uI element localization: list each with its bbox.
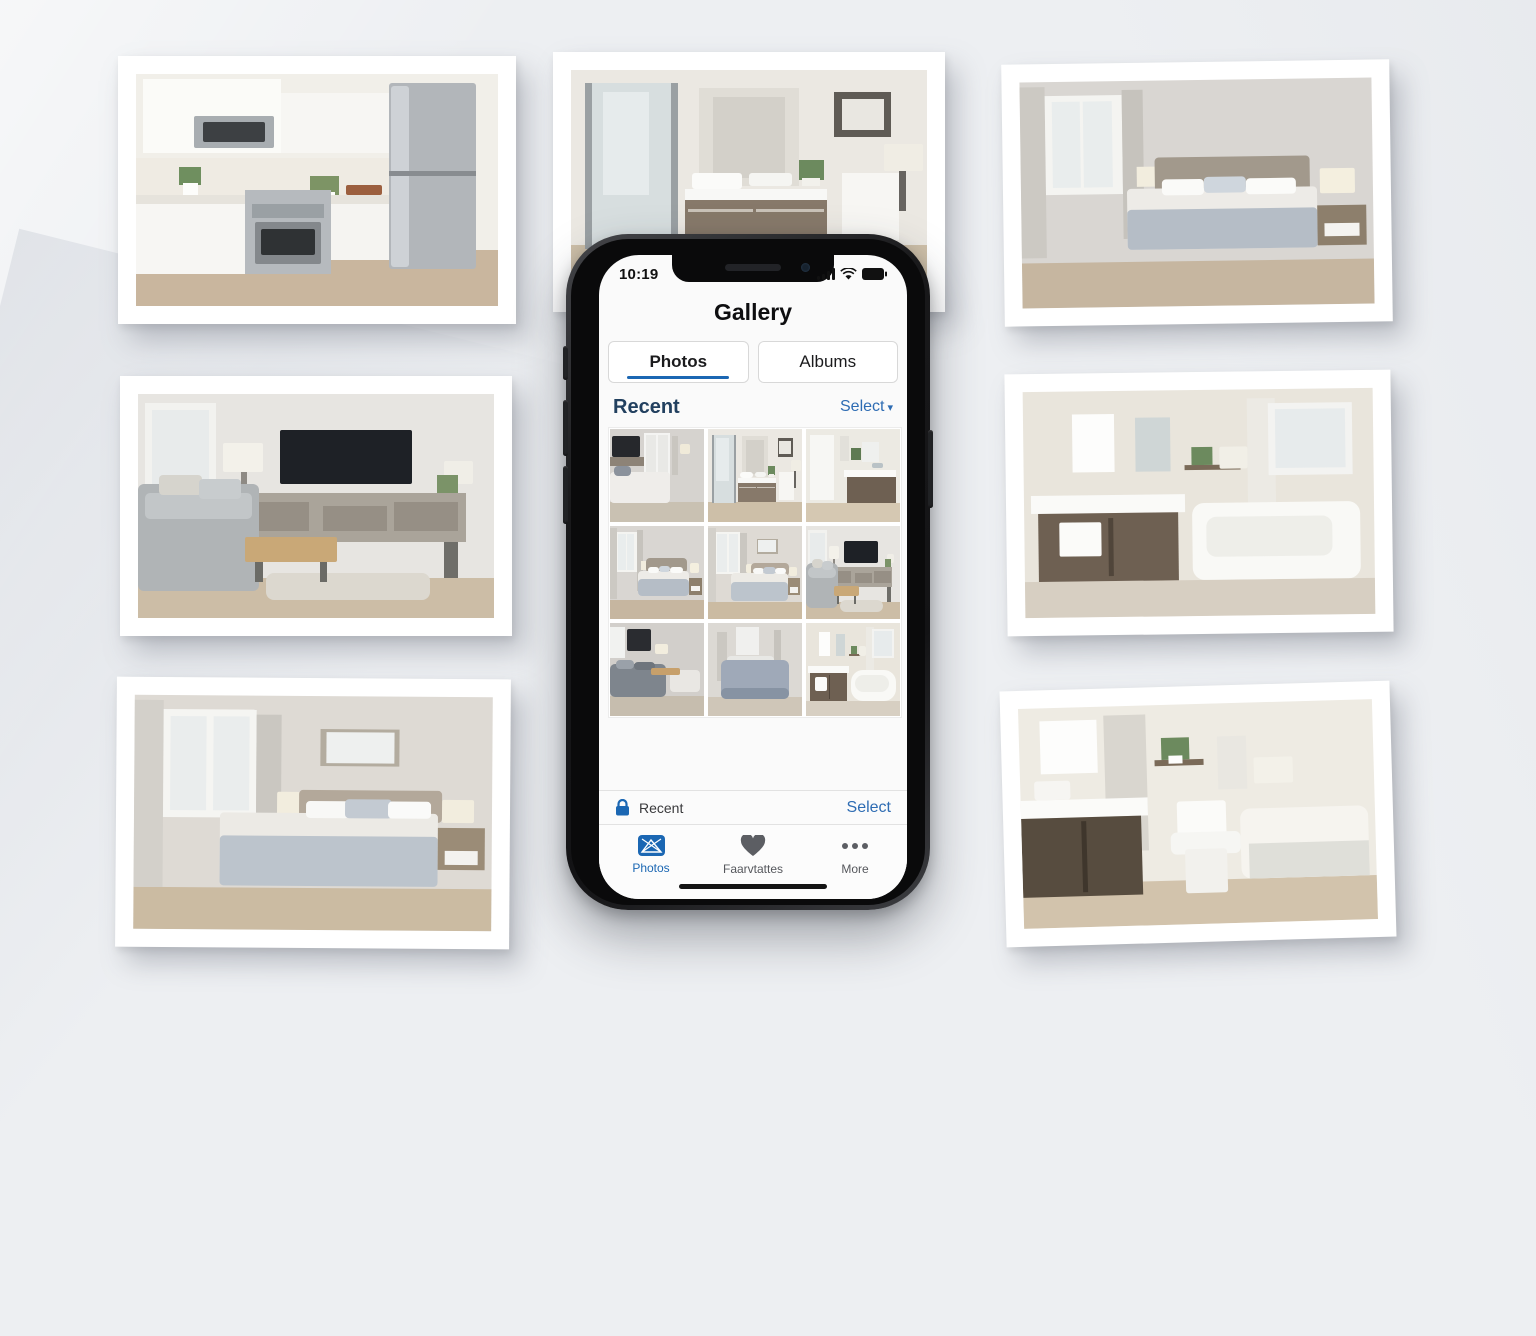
scene-shape (219, 836, 438, 887)
scene-shape (1108, 518, 1114, 577)
grid-photo-1[interactable] (610, 429, 704, 522)
section-title: Recent (613, 396, 680, 419)
scene-shape (223, 443, 262, 472)
scene-shape (690, 563, 699, 573)
scene-shape (1020, 87, 1047, 259)
scene-shape (627, 534, 635, 569)
scene-shape (819, 632, 830, 656)
scene-shape (1083, 102, 1112, 188)
status-time: 10:19 (619, 266, 658, 283)
scene-shape (133, 699, 163, 886)
scene-shape (1206, 515, 1332, 557)
scene-shape (648, 567, 659, 574)
scene-shape (862, 442, 879, 462)
scene-shape (1051, 102, 1080, 188)
scene-shape (731, 582, 788, 602)
grid-photo-7[interactable] (610, 623, 704, 716)
phone-bezel: 10:19 (571, 239, 925, 905)
scene-shape (213, 716, 249, 810)
living-room-print-image (138, 394, 494, 618)
grid-photo-4[interactable] (610, 526, 704, 619)
scene-shape (685, 189, 827, 200)
scene-shape (442, 800, 474, 824)
scene-shape (281, 93, 390, 153)
scene-shape (721, 688, 789, 699)
tabbar-item-photos[interactable]: Photos (625, 835, 677, 876)
scene-shape (133, 887, 491, 932)
volume-up-button[interactable] (563, 400, 568, 456)
scene-shape (855, 573, 872, 583)
scene-shape (713, 97, 784, 178)
scene-shape (610, 502, 704, 522)
phone-screen: 10:19 (599, 255, 907, 899)
scene-shape (389, 171, 476, 176)
scene-shape (855, 675, 889, 692)
scene-shape (445, 851, 477, 865)
scene-shape (815, 677, 826, 691)
tabbar-item-more[interactable]: More (829, 835, 881, 876)
scene-shape (627, 629, 651, 651)
scene-shape (691, 586, 700, 592)
album-row-label: Recent (639, 800, 847, 816)
scene-shape (444, 542, 458, 578)
photo-grid (608, 427, 902, 718)
scene-shape (844, 470, 897, 477)
scene-shape (734, 435, 736, 504)
scene-shape (837, 596, 839, 604)
photos-icon (638, 835, 665, 856)
scene-shape (885, 559, 891, 566)
scene-shape (610, 600, 704, 619)
scene-shape (1320, 168, 1356, 193)
scene-shape (840, 436, 849, 460)
scene-shape (763, 567, 775, 574)
home-indicator[interactable] (679, 884, 827, 889)
scene-shape (1025, 578, 1375, 618)
scene-shape (1127, 207, 1318, 250)
ellipsis-icon (842, 835, 868, 857)
scene-shape (834, 586, 858, 596)
scene-shape (391, 86, 409, 267)
scene-shape (822, 561, 833, 569)
scene-shape (806, 503, 900, 522)
scene-shape (708, 502, 802, 522)
tabbar-label: More (841, 862, 868, 876)
scene-shape (266, 573, 430, 600)
scene-shape (854, 596, 856, 604)
scene-shape (806, 701, 900, 716)
scene-shape (614, 466, 631, 476)
page-title: Gallery (599, 299, 907, 326)
grid-photo-8[interactable] (708, 623, 802, 716)
scene-shape (618, 534, 626, 569)
power-button[interactable] (928, 430, 933, 508)
scene-shape (851, 646, 857, 653)
scene-shape (638, 579, 689, 596)
scene-shape (756, 209, 824, 212)
scene-shape (345, 799, 392, 818)
scene-shape (671, 83, 678, 249)
bedroom-print (1001, 59, 1393, 326)
scene-shape (794, 471, 796, 488)
scene-shape (170, 716, 206, 810)
scene-shape (261, 229, 315, 255)
scene-shape (884, 144, 923, 171)
scene-shape (280, 430, 412, 484)
scene-shape (749, 173, 792, 186)
tabbar-label: Photos (632, 861, 669, 875)
scene-shape (874, 571, 891, 583)
battery-icon (862, 268, 887, 280)
tab-photos[interactable]: Photos (608, 341, 749, 383)
tab-photos-label: Photos (649, 352, 707, 372)
scene-shape (851, 448, 860, 460)
grid-photo-2[interactable] (708, 429, 802, 522)
grid-photo-5[interactable] (708, 526, 802, 619)
scene-shape (136, 204, 252, 274)
scene-shape (199, 479, 242, 499)
select-button[interactable]: Select ▾ (840, 398, 893, 416)
heart-icon (740, 835, 766, 857)
scene-shape (159, 475, 202, 495)
bottom-tab-bar: Photos Faarvtattes More (599, 825, 907, 899)
scene-shape (326, 732, 394, 763)
scene-shape (829, 675, 830, 699)
tab-albums-label: Albums (799, 352, 856, 372)
scene-shape (1324, 222, 1359, 236)
scene-shape (1040, 720, 1098, 774)
scene-shape (775, 568, 786, 575)
scene-shape (1191, 446, 1212, 464)
scene-shape (736, 627, 759, 655)
scene-shape (670, 567, 683, 574)
kitchen-print (118, 56, 516, 324)
tab-albums[interactable]: Albums (758, 341, 899, 383)
bedroom-print-image (1019, 78, 1374, 309)
bathroom-toilet-print (1000, 681, 1397, 948)
scene-shape (1135, 417, 1171, 472)
scene-shape (872, 463, 883, 468)
scene-shape (603, 92, 649, 195)
scene-shape (1031, 494, 1185, 514)
scene-shape (779, 441, 790, 454)
scene-shape (610, 627, 625, 659)
scene-shape (1162, 179, 1204, 195)
scene-shape (836, 634, 845, 656)
scene-shape (740, 472, 753, 479)
scene-shape (306, 801, 349, 818)
scene-shape (842, 99, 885, 130)
scene-shape (887, 587, 891, 602)
scene-shape (252, 204, 324, 218)
scene-shape (716, 438, 728, 481)
scene-shape (739, 487, 756, 488)
signal-icon (817, 268, 835, 280)
phone: 10:19 (566, 234, 930, 910)
scene-shape (790, 587, 798, 593)
scene-shape (899, 171, 906, 211)
scene-shape (346, 185, 382, 194)
scene-shape (1275, 409, 1346, 469)
scene-shape (757, 487, 775, 488)
scene-shape (1168, 755, 1182, 764)
tabbar-item-favorites[interactable]: Faarvtattes (723, 835, 783, 876)
scene-shape (610, 696, 704, 716)
scene-shape (712, 435, 714, 504)
status-bar: 10:19 (599, 264, 907, 284)
scene-shape (802, 178, 820, 187)
scene-shape (610, 472, 670, 504)
scene-shape (840, 600, 883, 611)
scene-shape (612, 436, 640, 456)
scene-shape (1022, 258, 1375, 308)
scene-shape (1217, 736, 1247, 790)
scene-shape (808, 666, 849, 673)
scene-shape (729, 534, 738, 571)
scene-shape (1248, 840, 1369, 879)
scene-shape (692, 173, 742, 189)
scene-shape (1059, 522, 1101, 556)
scene-shape (1246, 178, 1295, 194)
scene-shape (245, 537, 338, 562)
scene-shape (655, 644, 668, 653)
scene-shape (791, 460, 801, 471)
scene-shape (708, 528, 716, 602)
scene-shape (859, 646, 867, 655)
scene-shape (708, 602, 802, 619)
scene-shape (1253, 756, 1293, 783)
grid-photo-6[interactable] (806, 526, 900, 619)
scene-shape (844, 541, 879, 563)
scene-shape (847, 477, 896, 503)
scene-shape (717, 534, 726, 571)
bedroom-2-print (115, 677, 511, 950)
scene-shape (874, 631, 893, 655)
scene-shape (437, 475, 458, 493)
volume-down-button[interactable] (563, 466, 568, 524)
scene-shape (1072, 414, 1115, 473)
recent-header-row: Recent Select ▾ (599, 393, 907, 421)
scene-shape (585, 83, 592, 249)
scene-shape (758, 540, 776, 552)
scene-shape (1034, 780, 1070, 801)
mute-switch[interactable] (563, 346, 568, 380)
tabbar-label: Faarvtattes (723, 862, 783, 876)
scene-shape (203, 122, 265, 143)
scene-shape (255, 562, 262, 582)
scene-shape (680, 444, 690, 454)
scene-shape (829, 546, 839, 558)
bathroom-tub-print-image (1023, 388, 1376, 618)
grid-photo-3[interactable] (806, 429, 900, 522)
scene-shape (323, 506, 387, 531)
bathroom-tub-print (1004, 370, 1393, 637)
scene-shape (769, 474, 774, 478)
scene-shape (394, 502, 458, 531)
active-tab-underline (627, 376, 729, 379)
scene-shape (672, 436, 678, 475)
scene-shape (1219, 446, 1247, 469)
scene-shape (810, 435, 834, 500)
scene-shape (1204, 176, 1246, 192)
scene-shape (708, 697, 802, 716)
scene-shape (746, 440, 765, 473)
scene-shape (1185, 848, 1229, 893)
scene-shape (789, 567, 797, 576)
chevron-down-icon: ▾ (887, 401, 893, 414)
kitchen-print-image (136, 74, 498, 306)
scene-shape (388, 802, 431, 819)
scene-shape (331, 204, 389, 260)
scene-shape (610, 457, 644, 466)
scene-shape (320, 562, 327, 582)
living-room-print (120, 376, 512, 636)
bathroom-toilet-print-image (1018, 699, 1378, 929)
scene-shape (183, 183, 197, 195)
lock-icon (615, 799, 630, 816)
select-label: Select (840, 398, 884, 416)
scene-shape (610, 528, 617, 599)
scene-shape (842, 173, 899, 240)
select-button-footer[interactable]: Select (847, 799, 891, 817)
grid-photo-9[interactable] (806, 623, 900, 716)
scene-shape (779, 472, 794, 500)
scene-shape (755, 472, 766, 478)
wifi-icon (840, 268, 857, 280)
scene-shape (688, 209, 752, 212)
bedroom-2-print-image (133, 695, 493, 931)
tab-bar-top: Photos Albums (608, 341, 898, 383)
album-row[interactable]: Recent Select (599, 791, 907, 824)
scene-shape (651, 668, 679, 675)
scene-shape (659, 566, 670, 573)
scene-shape (616, 660, 635, 669)
